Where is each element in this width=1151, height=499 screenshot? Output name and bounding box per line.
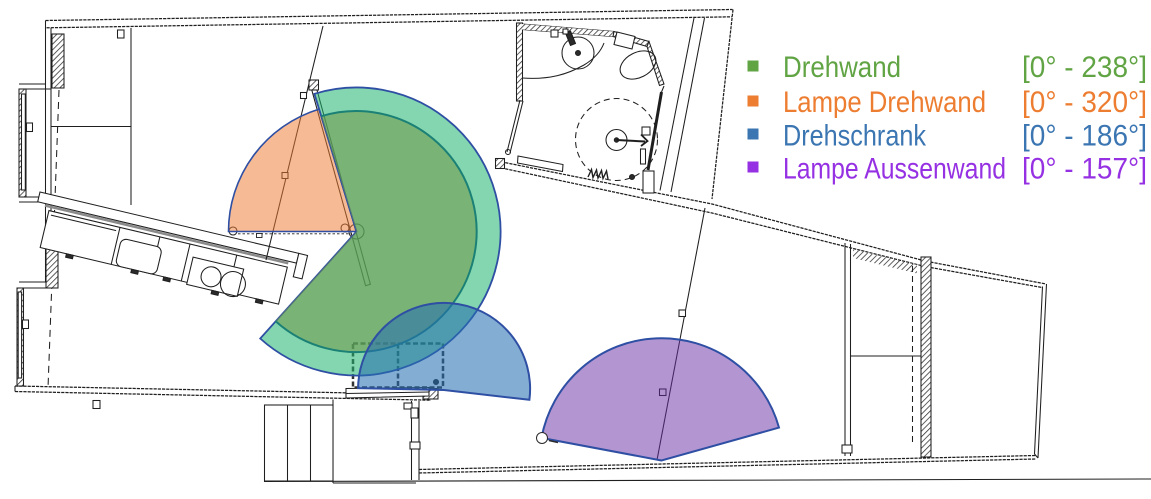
svg-text:Lampe Aussenwand: Lampe Aussenwand <box>783 153 1006 186</box>
svg-text:[0° - 320°]: [0° - 320°] <box>1022 86 1147 119</box>
svg-text:[0° - 157°]: [0° - 157°] <box>1022 153 1147 186</box>
svg-text:[0° - 238°]: [0° - 238°] <box>1022 51 1147 84</box>
svg-text:Drehschrank: Drehschrank <box>783 120 927 153</box>
svg-text:Drehwand: Drehwand <box>783 51 901 84</box>
svg-text:[0° - 186°]: [0° - 186°] <box>1022 120 1147 153</box>
svg-text:Lampe Drehwand: Lampe Drehwand <box>783 86 986 119</box>
